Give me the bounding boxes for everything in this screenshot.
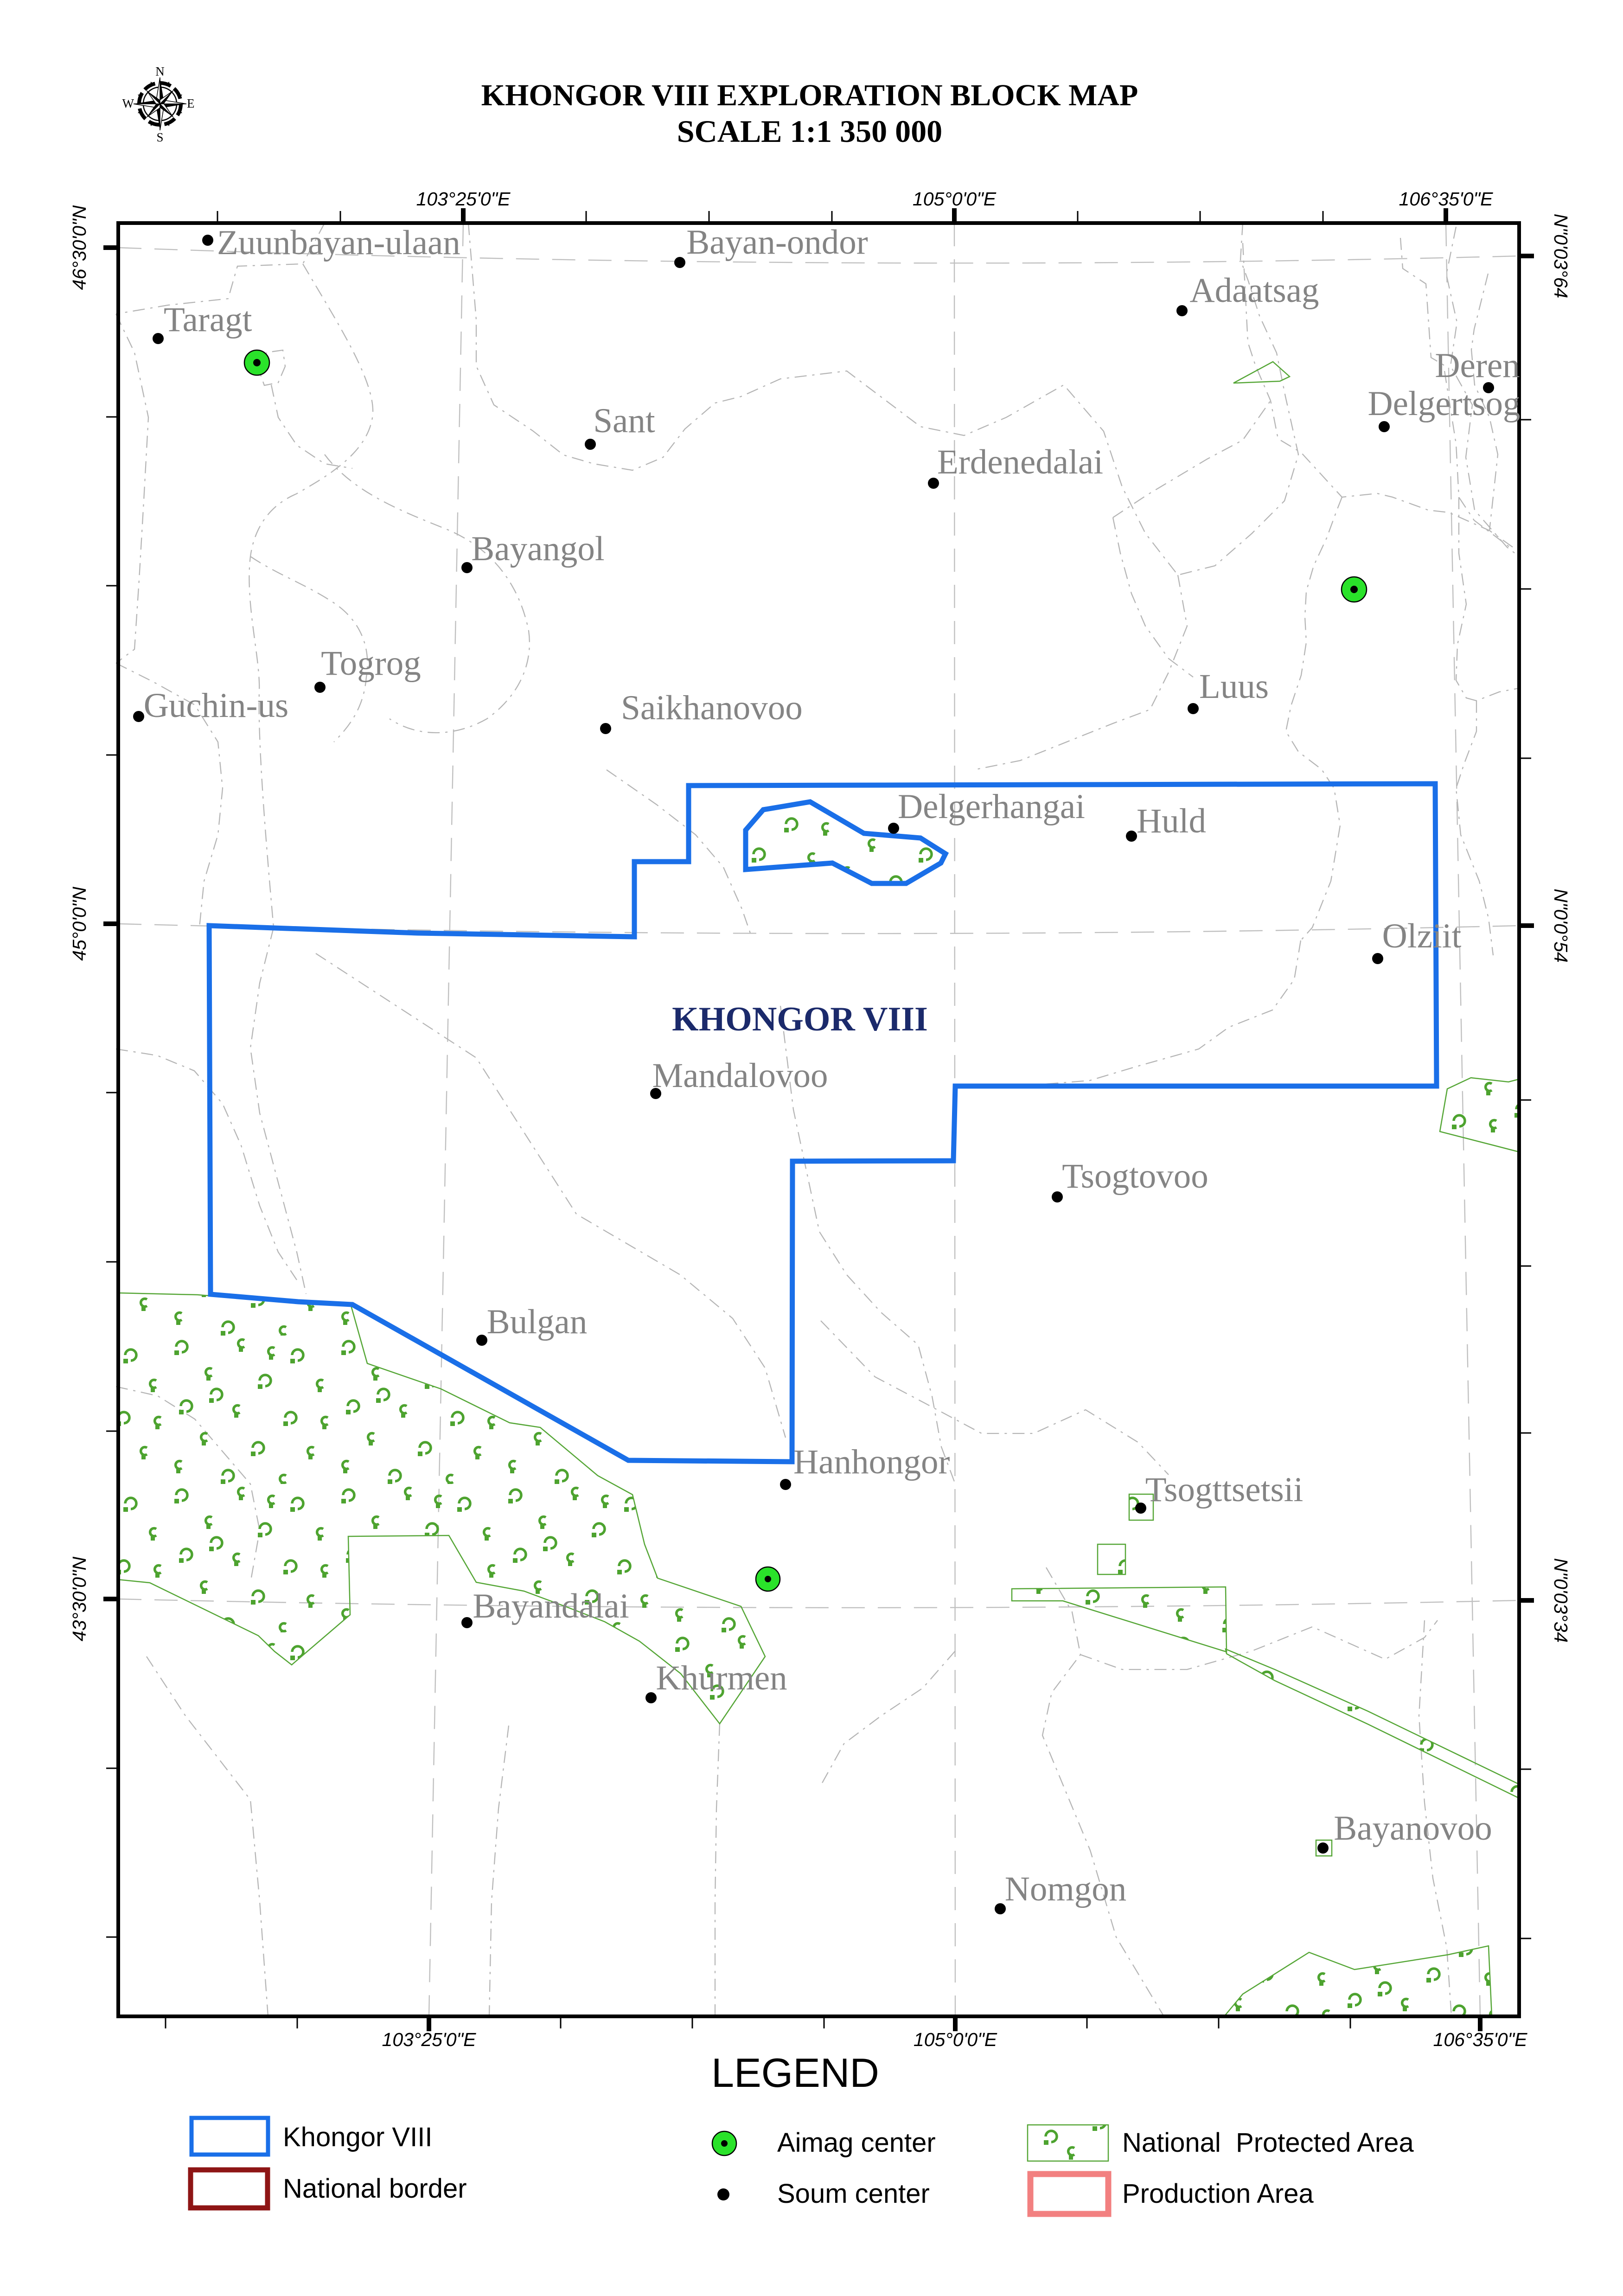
svg-text:Olziit: Olziit [1382, 917, 1462, 955]
svg-text:Soum center: Soum center [777, 2179, 930, 2209]
svg-text:Aimag center: Aimag center [777, 2128, 936, 2158]
svg-text:Luus: Luus [1199, 667, 1269, 706]
svg-text:Bayanovoo: Bayanovoo [1334, 1809, 1492, 1848]
svg-text:National Protected Area: National Protected Area [1122, 2128, 1414, 2158]
svg-text:Tsogtovoo: Tsogtovoo [1062, 1157, 1208, 1196]
svg-text:N"0'0°54: N"0'0°54 [1550, 889, 1572, 963]
svg-text:Hanhongor: Hanhongor [793, 1443, 950, 1481]
svg-text:103°25'0"E: 103°25'0"E [416, 188, 511, 210]
svg-text:Khongor VIII: Khongor VIII [283, 2122, 432, 2152]
svg-text:106°35'0"E: 106°35'0"E [1399, 188, 1494, 210]
svg-text:LEGEND: LEGEND [711, 2050, 879, 2096]
svg-text:SCALE 1:1 350 000: SCALE 1:1 350 000 [677, 114, 942, 149]
svg-text:Bayandalai: Bayandalai [473, 1587, 629, 1625]
svg-text:Bayan-ondor: Bayan-ondor [686, 223, 868, 262]
svg-text:103°25'0"E: 103°25'0"E [382, 2029, 477, 2050]
svg-text:Guchin-us: Guchin-us [144, 686, 288, 725]
svg-text:Nomgon: Nomgon [1005, 1870, 1127, 1908]
svg-text:Bulgan: Bulgan [487, 1303, 588, 1341]
svg-text:Mandalovoo: Mandalovoo [652, 1056, 828, 1095]
svg-text:Production Area: Production Area [1122, 2179, 1314, 2209]
svg-text:Togrog: Togrog [321, 644, 421, 683]
svg-text:N"0'03°34: N"0'03°34 [1550, 1558, 1572, 1643]
svg-text:Adaatsag: Adaatsag [1189, 271, 1319, 310]
svg-text:105°0'0"E: 105°0'0"E [914, 2029, 997, 2050]
svg-text:N: N [155, 64, 165, 78]
svg-text:Erdenedalai: Erdenedalai [937, 443, 1103, 481]
svg-text:46°30'0"N: 46°30'0"N [69, 205, 90, 290]
svg-text:N"0'03°64: N"0'03°64 [1550, 214, 1572, 298]
svg-text:Saikhanovoo: Saikhanovoo [621, 689, 803, 727]
svg-text:W: W [122, 96, 134, 110]
svg-text:National border: National border [283, 2174, 467, 2204]
svg-text:KHONGOR VIII EXPLORATION BLOCK: KHONGOR VIII EXPLORATION BLOCK MAP [481, 78, 1138, 112]
svg-text:Delgerhangai: Delgerhangai [898, 787, 1085, 826]
svg-text:E: E [187, 96, 195, 110]
svg-text:45°0'0"N: 45°0'0"N [69, 887, 90, 961]
svg-text:KHONGOR VIII: KHONGOR VIII [672, 1000, 928, 1038]
svg-text:Delgertsog: Delgertsog [1367, 384, 1520, 423]
svg-text:Taragt: Taragt [164, 301, 252, 339]
svg-text:Zuunbayan-ulaan: Zuunbayan-ulaan [217, 224, 460, 262]
svg-text:S: S [156, 130, 163, 144]
svg-text:Tsogttsetsii: Tsogttsetsii [1145, 1471, 1304, 1509]
svg-text:105°0'0"E: 105°0'0"E [913, 188, 997, 210]
svg-text:Khurmen: Khurmen [656, 1659, 787, 1697]
svg-text:Bayangol: Bayangol [471, 530, 604, 568]
svg-text:Sant: Sant [593, 402, 655, 440]
svg-text:106°35'0"E: 106°35'0"E [1433, 2029, 1528, 2050]
svg-text:Huld: Huld [1137, 802, 1206, 840]
svg-text:43°30'0"N: 43°30'0"N [69, 1556, 90, 1641]
svg-text:Deren: Deren [1435, 346, 1520, 385]
